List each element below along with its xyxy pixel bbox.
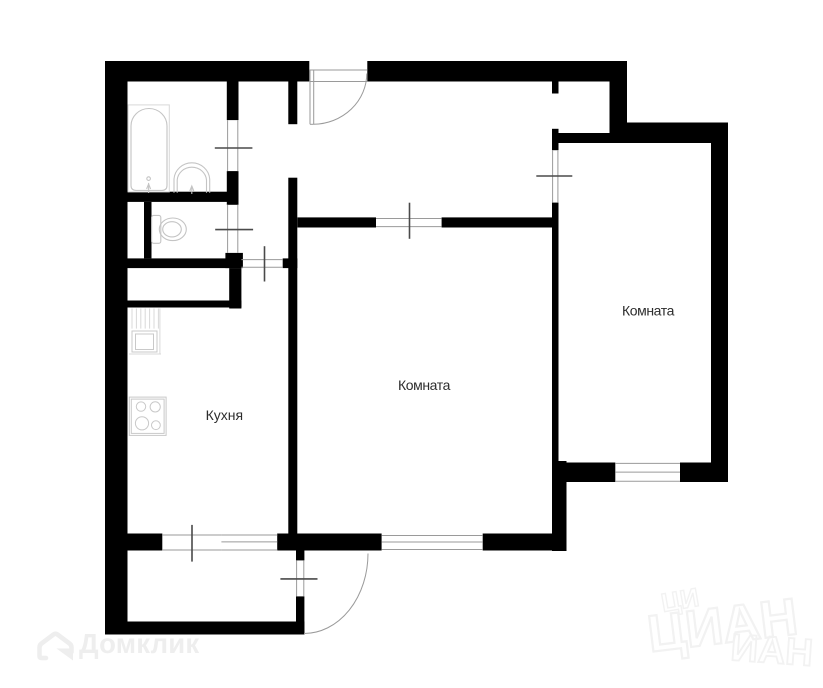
svg-text:Комната: Комната [398, 377, 451, 393]
svg-text:Комната: Комната [622, 303, 675, 319]
svg-text:Кухня: Кухня [206, 407, 243, 423]
svg-text:ИАН: ИАН [729, 627, 814, 675]
